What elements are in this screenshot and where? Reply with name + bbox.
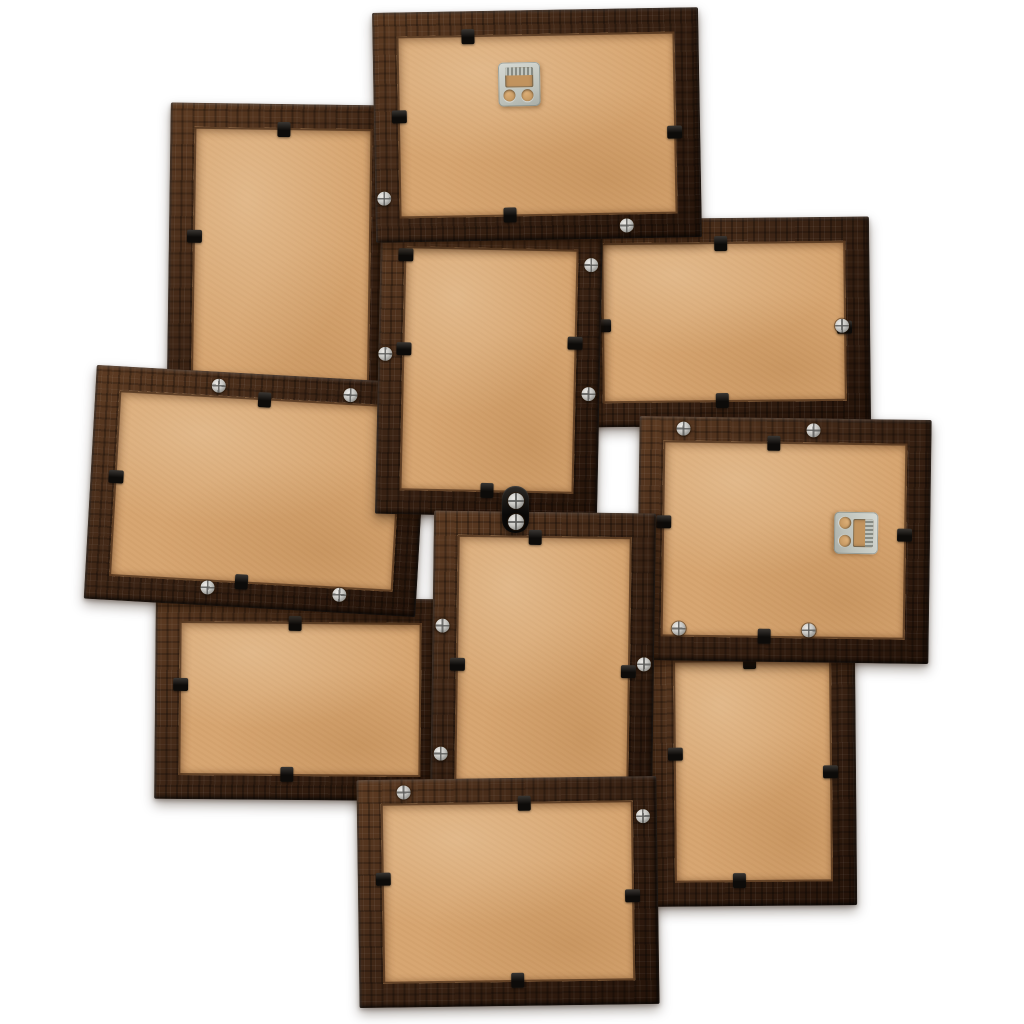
- assembly-screw: [378, 347, 392, 361]
- retainer-clip-left: [398, 248, 413, 261]
- retainer-clip-left: [173, 678, 188, 691]
- hanger-sawtooth-teeth: [865, 519, 873, 547]
- assembly-screw: [835, 319, 849, 333]
- retainer-clip-top: [461, 29, 474, 44]
- retainer-clip-right: [625, 889, 640, 902]
- sawtooth-hanger-icon: [498, 62, 541, 107]
- sawtooth-hanger-icon: [834, 512, 879, 555]
- mdf-back-panel: [673, 659, 833, 882]
- mdf-back-panel: [109, 390, 403, 592]
- mdf-back-panel: [601, 241, 847, 404]
- retainer-clip-left: [668, 748, 683, 761]
- assembly-screw: [343, 388, 358, 403]
- photo-frame-top-center: [372, 7, 702, 243]
- assembly-screw: [377, 192, 391, 206]
- assembly-screw: [581, 387, 595, 401]
- assembly-screw: [332, 587, 347, 602]
- joining-plate: [502, 486, 529, 533]
- retainer-clip-top: [714, 236, 727, 251]
- assembly-screw: [584, 258, 598, 272]
- photo-frame-upper-right: [577, 216, 871, 427]
- assembly-screw: [802, 623, 816, 637]
- assembly-screw: [636, 809, 650, 823]
- retainer-clip-bottom: [758, 629, 771, 644]
- retainer-clip-bottom: [733, 873, 746, 888]
- retainer-clip-left: [392, 110, 407, 123]
- retainer-clip-left: [396, 342, 411, 355]
- retainer-clip-right: [897, 528, 912, 541]
- photo-frame-center-lower: [430, 510, 656, 813]
- hanger-sawtooth-teeth: [505, 67, 533, 75]
- photo-frame-lower-right: [649, 635, 857, 907]
- assembly-screw: [200, 580, 215, 595]
- mdf-back-panel: [454, 535, 632, 789]
- retainer-clip-left: [108, 470, 124, 484]
- assembly-screw: [434, 746, 448, 760]
- retainer-clip-top: [277, 122, 290, 137]
- assembly-screw: [508, 493, 524, 509]
- retainer-clip-right: [823, 765, 838, 778]
- assembly-screw: [397, 785, 411, 799]
- assembly-screw: [806, 423, 820, 437]
- retainer-clip-left: [376, 873, 391, 886]
- retainer-clip-bottom: [511, 973, 524, 988]
- assembly-screw: [435, 618, 449, 632]
- mdf-back-panel: [381, 800, 635, 984]
- photo-frame-bottom-center: [356, 776, 659, 1008]
- retainer-clip-right: [667, 126, 682, 139]
- retainer-clip-left: [187, 230, 202, 243]
- assembly-screw: [676, 421, 690, 435]
- retainer-clip-bottom: [280, 767, 293, 782]
- mdf-back-panel: [396, 32, 677, 219]
- collage-photo-frame-back-view: [0, 0, 1024, 1024]
- photo-frame-lower-left: [154, 597, 446, 802]
- retainer-clip-left: [656, 515, 671, 528]
- retainer-clip-right: [567, 336, 582, 349]
- assembly-screw: [637, 657, 651, 671]
- retainer-clip-top: [529, 530, 542, 545]
- retainer-clip-left: [450, 658, 465, 671]
- retainer-clip-top: [258, 392, 272, 408]
- retainer-clip-bottom: [480, 483, 493, 498]
- retainer-clip-right: [621, 665, 636, 678]
- assembly-screw: [620, 218, 634, 232]
- mdf-back-panel: [178, 621, 421, 777]
- retainer-clip-top: [768, 436, 781, 451]
- retainer-clip-bottom: [235, 574, 249, 590]
- retainer-clip-bottom: [503, 207, 516, 222]
- photo-frame-center-upper: [375, 222, 603, 519]
- assembly-screw: [211, 378, 226, 393]
- mdf-back-panel: [399, 246, 578, 494]
- retainer-clip-bottom: [716, 393, 729, 408]
- assembly-screw: [508, 514, 524, 530]
- retainer-clip-top: [518, 796, 531, 811]
- photo-frame-right-middle: [636, 416, 931, 664]
- retainer-clip-top: [289, 616, 302, 631]
